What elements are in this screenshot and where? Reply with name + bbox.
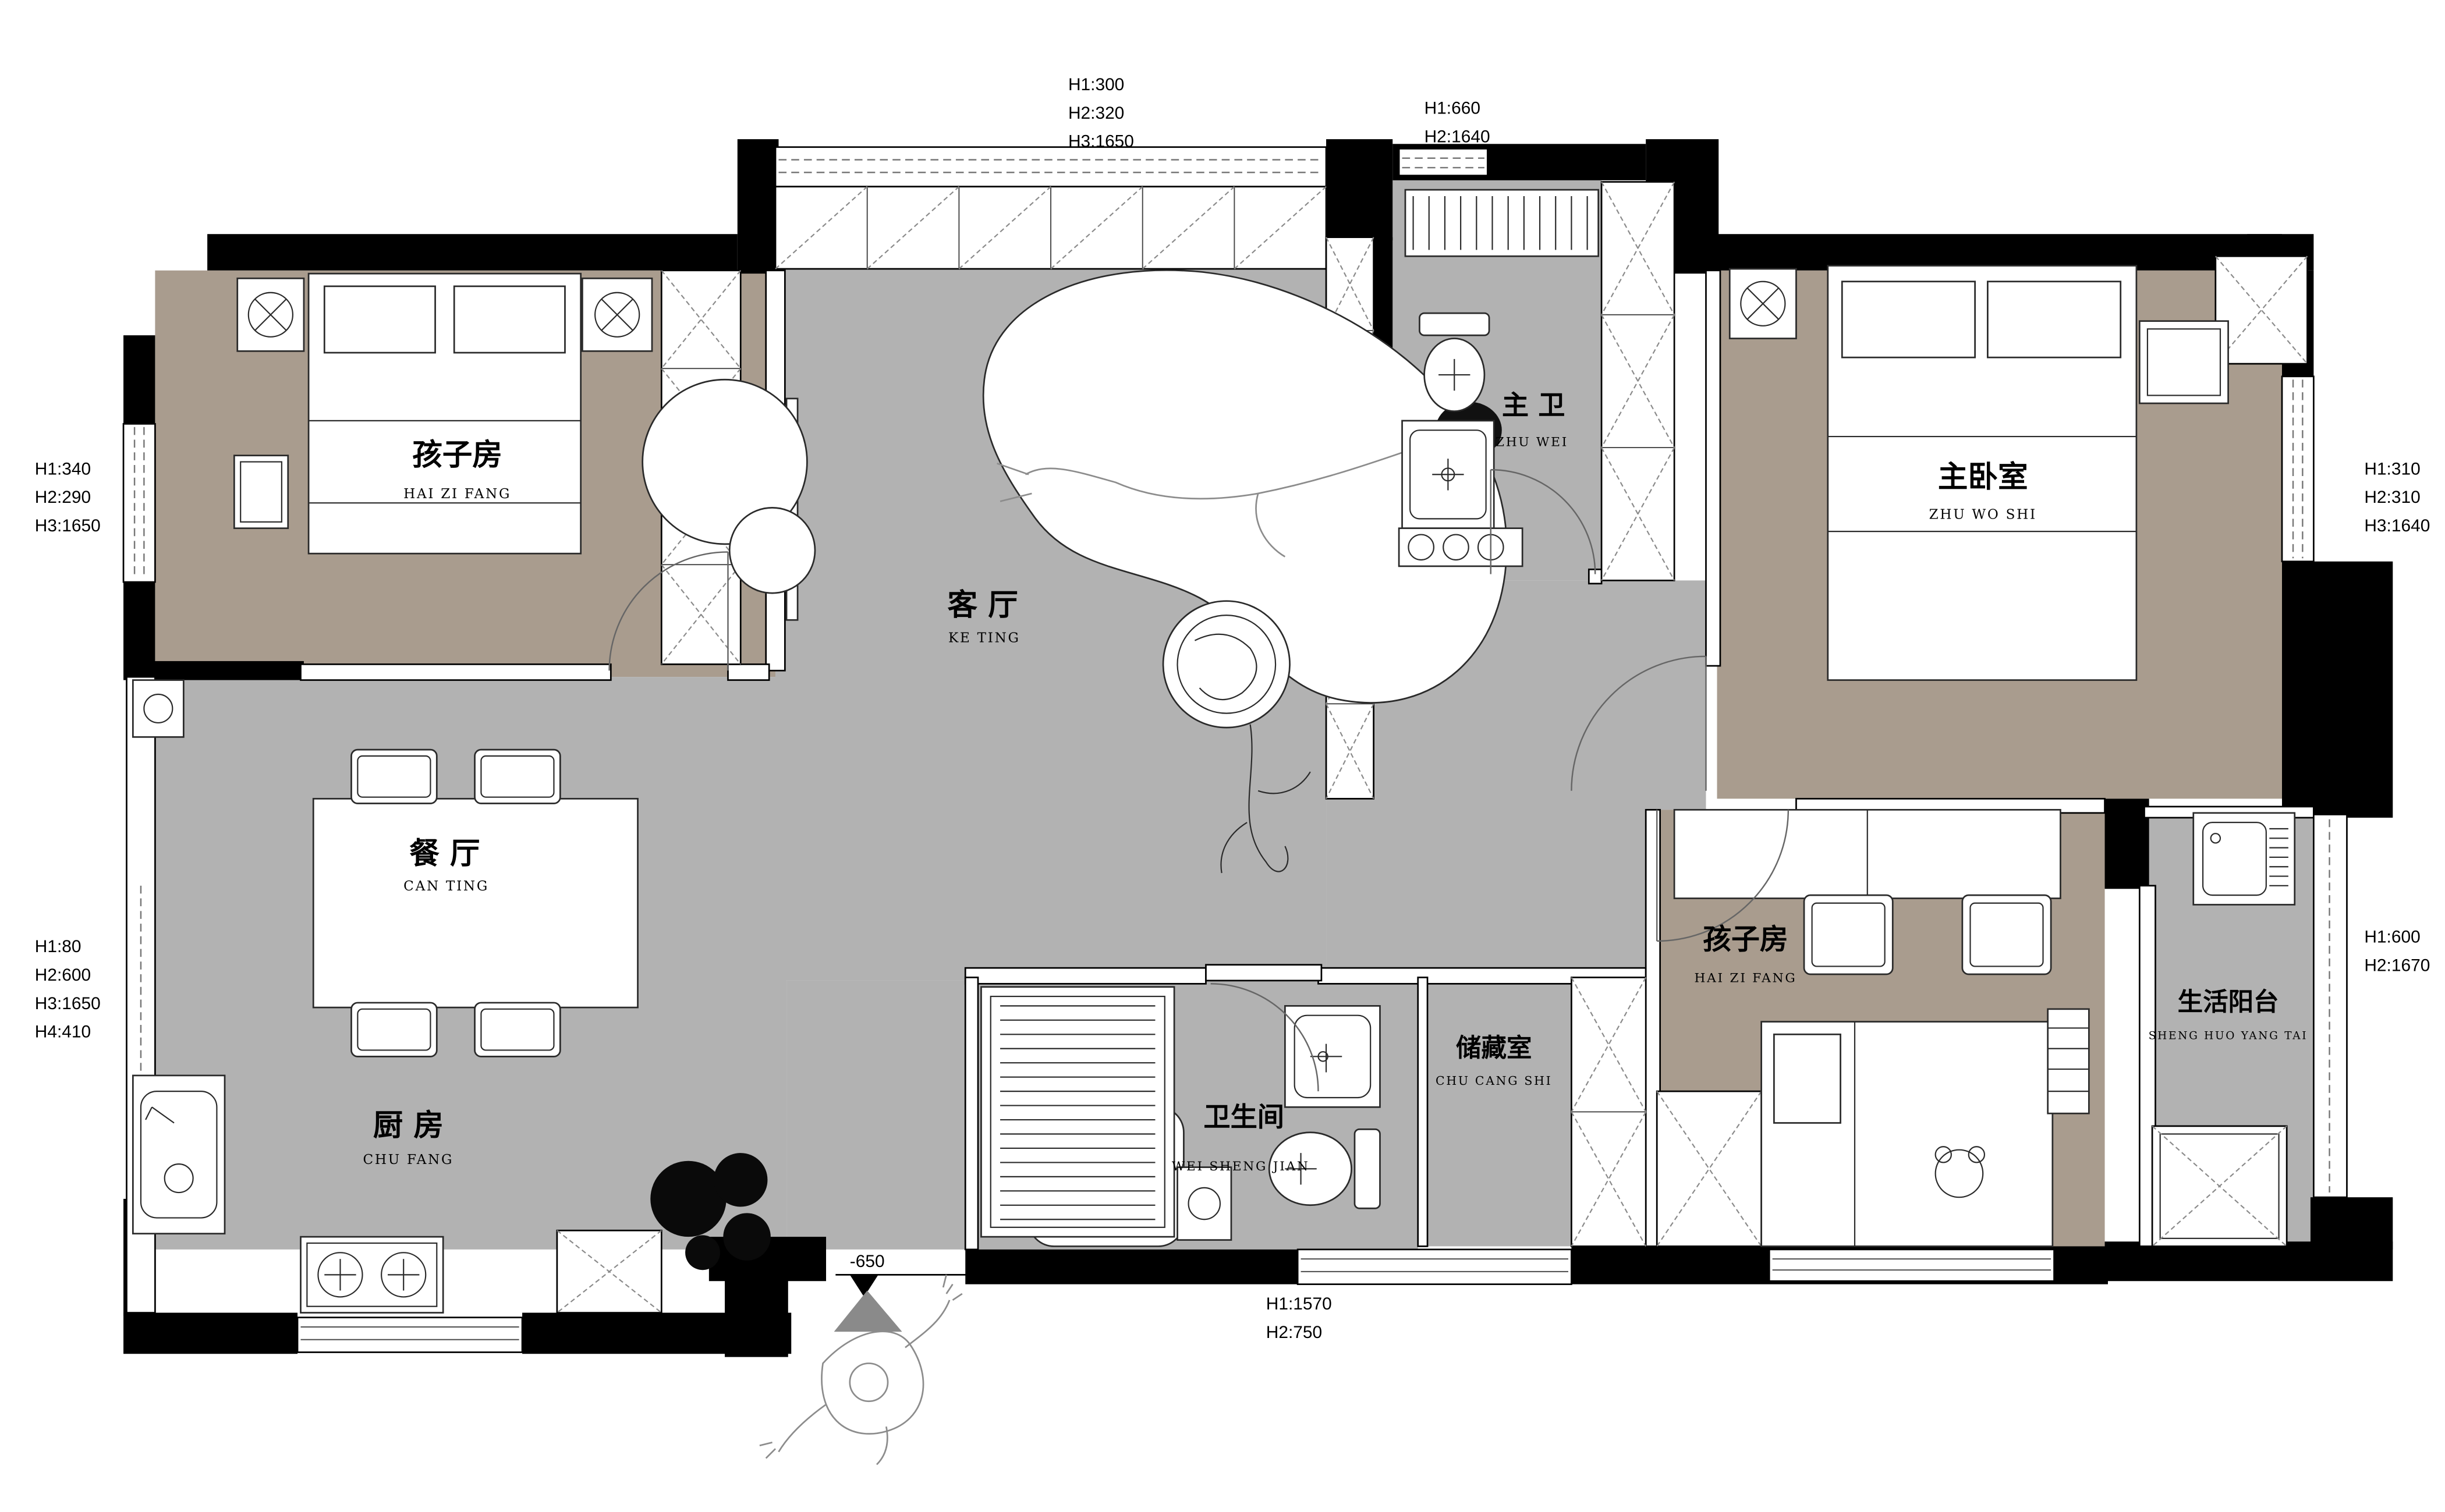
bath-vanity	[1285, 1006, 1380, 1107]
floor-plan-drawing: 孩子房 HAI ZI FANG 客 厅 KE TING 主 卫 ZHU WEI …	[0, 0, 2445, 1512]
label-dining-zh: 餐 厅	[409, 836, 480, 871]
window-balcony-right	[2313, 815, 2347, 1198]
annotation-line: H2:310	[2364, 488, 2420, 507]
annotation-line: H1:1570	[1266, 1294, 1332, 1314]
decor-plate	[1163, 601, 1289, 727]
sideboard	[133, 680, 183, 737]
annotation-line: H3:1650	[35, 516, 101, 535]
annotation-left-lower: H1:80 H2:600 H3:1650 H4:410	[35, 937, 101, 1042]
cabinet-balcony	[2152, 1126, 2287, 1247]
floor-entry	[786, 981, 965, 1250]
annotation-line: H1:340	[35, 459, 91, 478]
label-balcony-zh: 生活阳台	[2178, 988, 2279, 1017]
annotation-left-upper: H1:340 H2:290 H3:1650	[35, 459, 101, 535]
child1-side-table	[234, 456, 288, 528]
annotation-line: H2:320	[1068, 104, 1124, 123]
window-child1-left	[123, 424, 155, 582]
pillow	[1842, 282, 1975, 357]
toilet	[1419, 313, 1489, 411]
label-bath-zh: 卫生间	[1203, 1101, 1284, 1133]
dining-table	[313, 798, 637, 1007]
master-nightstand	[1730, 269, 1796, 339]
label-storage-zh: 储藏室	[1456, 1033, 1532, 1063]
fridge-kitchen	[557, 1230, 661, 1312]
annotation-right-upper: H1:310 H2:310 H3:1640	[2364, 459, 2430, 535]
child1-nightstand-left	[238, 278, 304, 351]
label-living-en: KE TING	[948, 630, 1020, 645]
balcony-sink	[2194, 813, 2295, 905]
pillow	[454, 286, 565, 353]
window-bottom-storage	[1298, 1250, 1571, 1284]
shower-unit	[981, 987, 1174, 1237]
window-master-bath-top	[1399, 148, 1487, 175]
annotation-bottom-center: H1:1570 H2:750	[1266, 1294, 1332, 1342]
window-kitchen-bottom	[297, 1318, 522, 1353]
label-living-zh: 客 厅	[948, 588, 1018, 623]
annotation-line: H2:750	[1266, 1323, 1322, 1342]
coffee-table-small	[729, 507, 815, 593]
label-kitchen-zh: 厨 房	[373, 1108, 444, 1143]
wardrobe-master-bath-side	[1601, 182, 1674, 581]
balcony-fixtures	[2194, 813, 2295, 905]
window-child2-bottom	[1769, 1250, 2054, 1281]
pillow	[324, 286, 435, 353]
washer-counter	[1399, 528, 1522, 566]
annotation-line: H1:600	[2364, 928, 2420, 947]
annotation-line: H2:1640	[1425, 127, 1490, 147]
annotation-line: H1:80	[35, 937, 81, 956]
wardrobe-master-corner	[2216, 256, 2308, 364]
annotation-line: H3:1650	[1068, 132, 1134, 151]
annotation-top-right: H1:660 H2:1640	[1425, 99, 1490, 147]
floor-storage	[1427, 977, 1571, 1246]
label-child2-en: HAI ZI FANG	[1694, 971, 1796, 986]
annotation-line: H2:1670	[2364, 956, 2430, 975]
annotation-line: H4:410	[35, 1023, 91, 1042]
label-dining-en: CAN TING	[403, 879, 489, 894]
radiator-rack	[1405, 190, 1599, 256]
annotation-line: H2:290	[35, 488, 91, 507]
label-master-en: ZHU WO SHI	[1929, 507, 2037, 522]
annotation-line: H2:600	[35, 966, 91, 985]
entry-marks	[760, 1275, 969, 1464]
bath-small-sink	[1178, 1167, 1231, 1240]
label-master-bath-en: ZHU WEI	[1496, 435, 1568, 449]
child1-nightstand-right	[582, 278, 652, 351]
wardrobe-child2	[1657, 1091, 1761, 1246]
label-master-zh: 主卧室	[1938, 460, 2028, 495]
label-child1-en: HAI ZI FANG	[403, 487, 511, 502]
entry-arrow	[834, 1291, 902, 1332]
annotation-line: H1:660	[1425, 99, 1480, 118]
annotation-line: H3:1650	[35, 994, 101, 1013]
annotation-line: H3:1640	[2364, 516, 2430, 535]
vanity-sink	[1402, 421, 1494, 528]
pillow	[1774, 1034, 1840, 1123]
child2-bed	[1762, 1022, 2053, 1247]
wardrobe-storage-side	[1571, 977, 1646, 1246]
closet-row-living-top	[775, 187, 1326, 269]
window-master-right	[2282, 377, 2313, 562]
kitchen-sink	[133, 1076, 225, 1234]
floor-plan-canvas: 孩子房 HAI ZI FANG 客 厅 KE TING 主 卫 ZHU WEI …	[0, 0, 2445, 1512]
label-balcony-en: SHENG HUO YANG TAI	[2149, 1030, 2308, 1042]
label-master-bath-zh: 主 卫	[1502, 389, 1565, 421]
annotation-top-center: H1:300 H2:320 H3:1650	[1068, 75, 1134, 151]
annotation-right-lower: H1:600 H2:1670	[2364, 928, 2430, 975]
annotation-line: H1:310	[2364, 459, 2420, 478]
child2-desk	[1674, 810, 2060, 898]
label-kitchen-en: CHU FANG	[363, 1152, 453, 1167]
label-storage-en: CHU CANG SHI	[1436, 1074, 1552, 1088]
label-bath-en: WEI SHENG JIAN	[1172, 1159, 1310, 1174]
master-side-table	[2139, 321, 2228, 403]
level-triangle	[850, 1275, 878, 1297]
stove	[301, 1237, 444, 1312]
bunk-ladder	[2048, 1009, 2089, 1113]
annotation-line: H1:300	[1068, 75, 1124, 94]
entry-level-value: -650	[850, 1252, 885, 1271]
label-child1-zh: 孩子房	[412, 438, 502, 473]
pillow	[1987, 282, 2120, 357]
floor-corridor-lower	[1326, 798, 1646, 981]
label-child2-zh: 孩子房	[1703, 922, 1788, 956]
window-living-top	[775, 147, 1326, 187]
